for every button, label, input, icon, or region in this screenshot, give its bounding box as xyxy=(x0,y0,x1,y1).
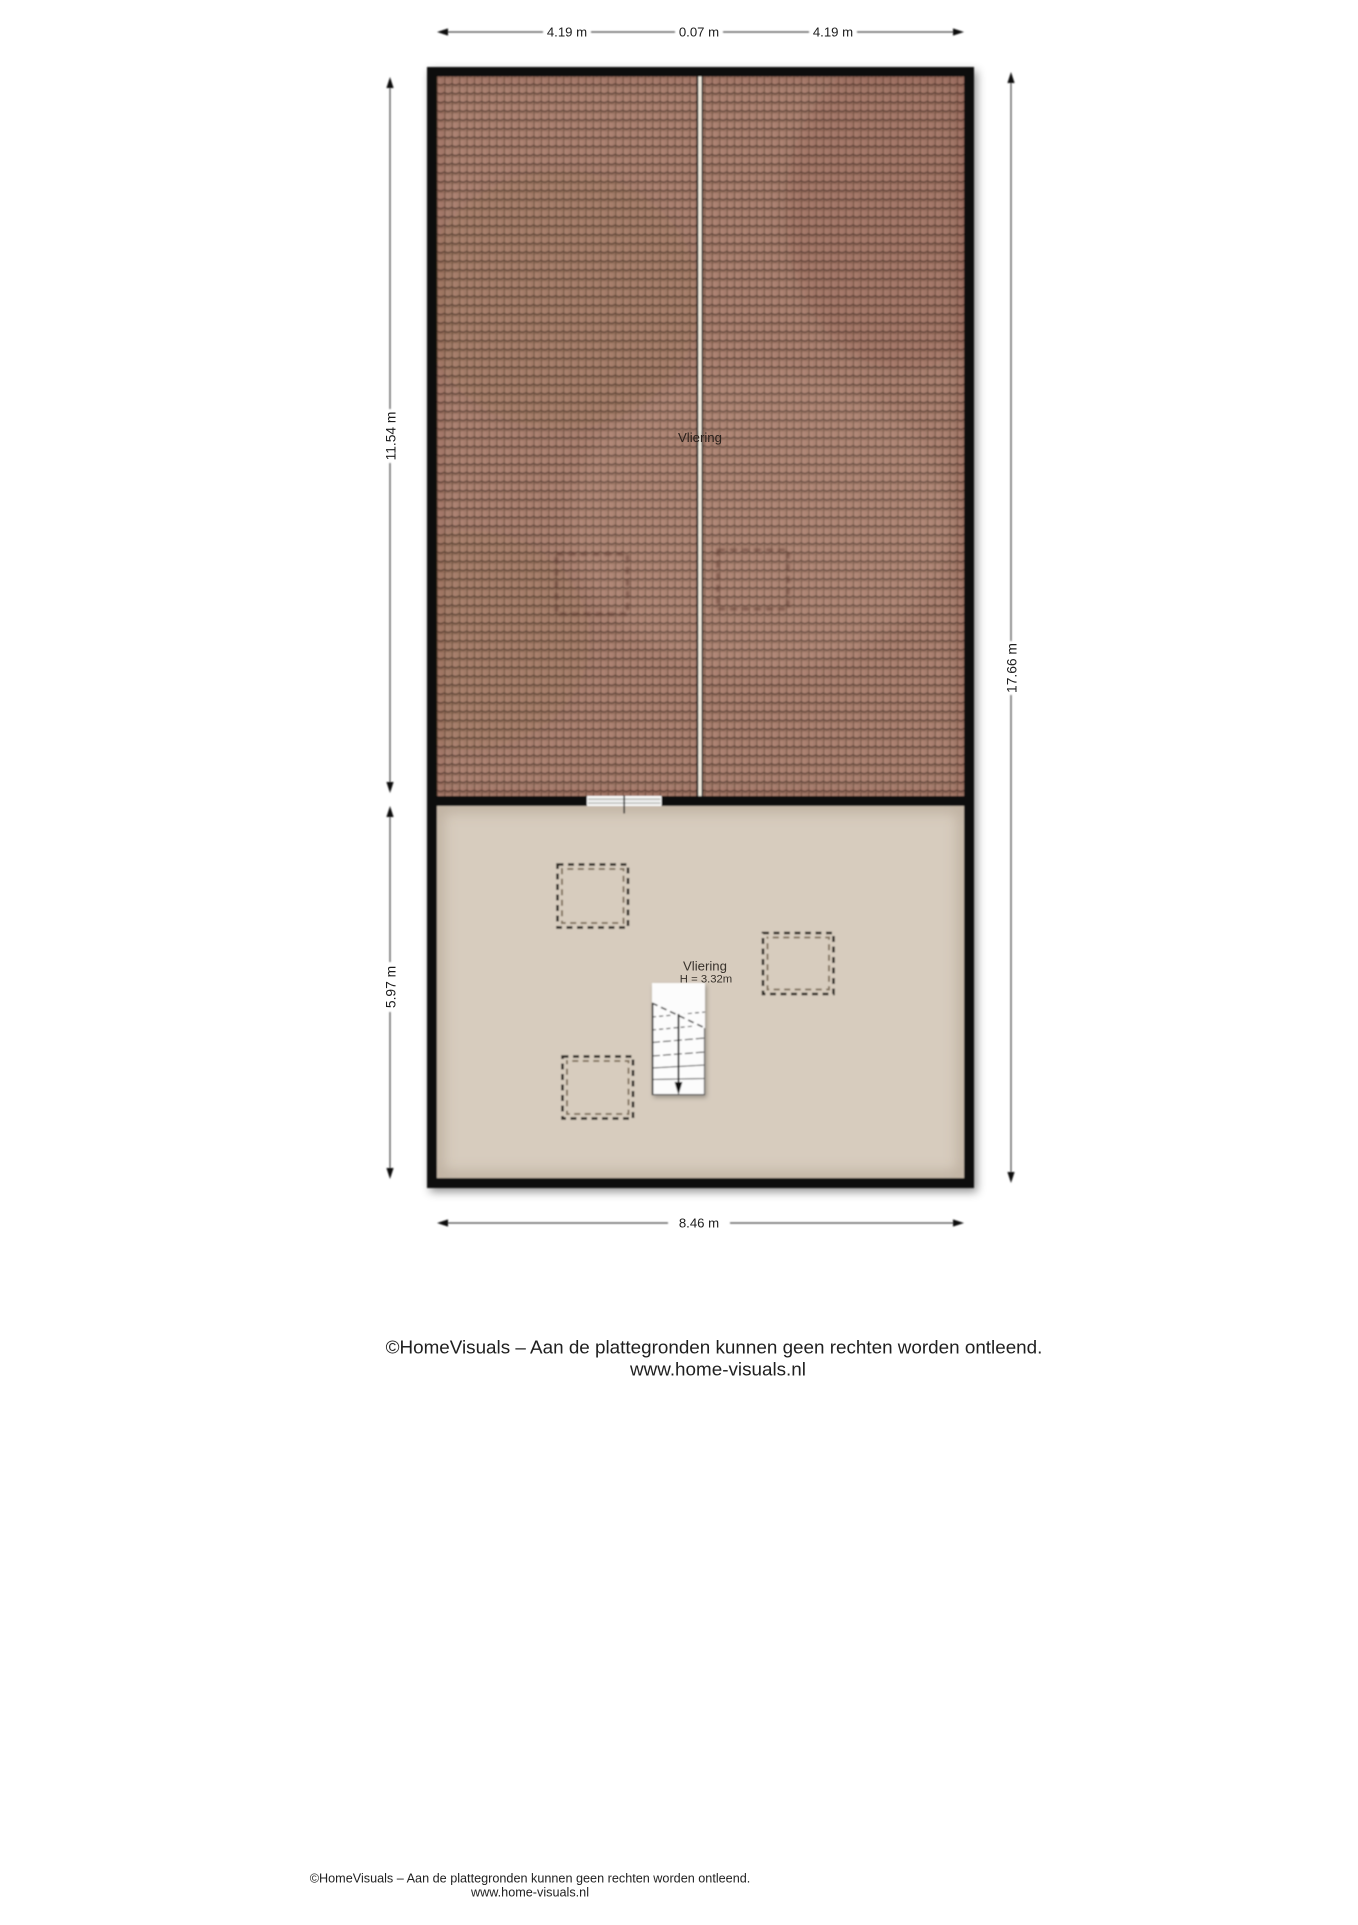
svg-text:8.46 m: 8.46 m xyxy=(679,1216,719,1231)
svg-text:5.97 m: 5.97 m xyxy=(384,966,399,1008)
svg-text:H = 3.32m: H = 3.32m xyxy=(680,974,732,986)
svg-text:Vliering: Vliering xyxy=(678,430,722,445)
svg-text:11.54 m: 11.54 m xyxy=(384,412,399,461)
svg-text:17.66 m: 17.66 m xyxy=(1005,643,1020,693)
svg-text:www.home-visuals.nl: www.home-visuals.nl xyxy=(629,1359,806,1380)
svg-text:©HomeVisuals – Aan de plattegr: ©HomeVisuals – Aan de plattegronden kunn… xyxy=(310,1872,751,1886)
svg-text:www.home-visuals.nl: www.home-visuals.nl xyxy=(470,1886,589,1900)
svg-text:0.07 m: 0.07 m xyxy=(679,25,719,40)
svg-text:Vliering: Vliering xyxy=(683,959,727,974)
svg-text:©HomeVisuals – Aan de plattegr: ©HomeVisuals – Aan de plattegronden kunn… xyxy=(386,1337,1043,1358)
svg-text:4.19 m: 4.19 m xyxy=(547,25,587,40)
svg-text:4.19 m: 4.19 m xyxy=(813,25,853,40)
